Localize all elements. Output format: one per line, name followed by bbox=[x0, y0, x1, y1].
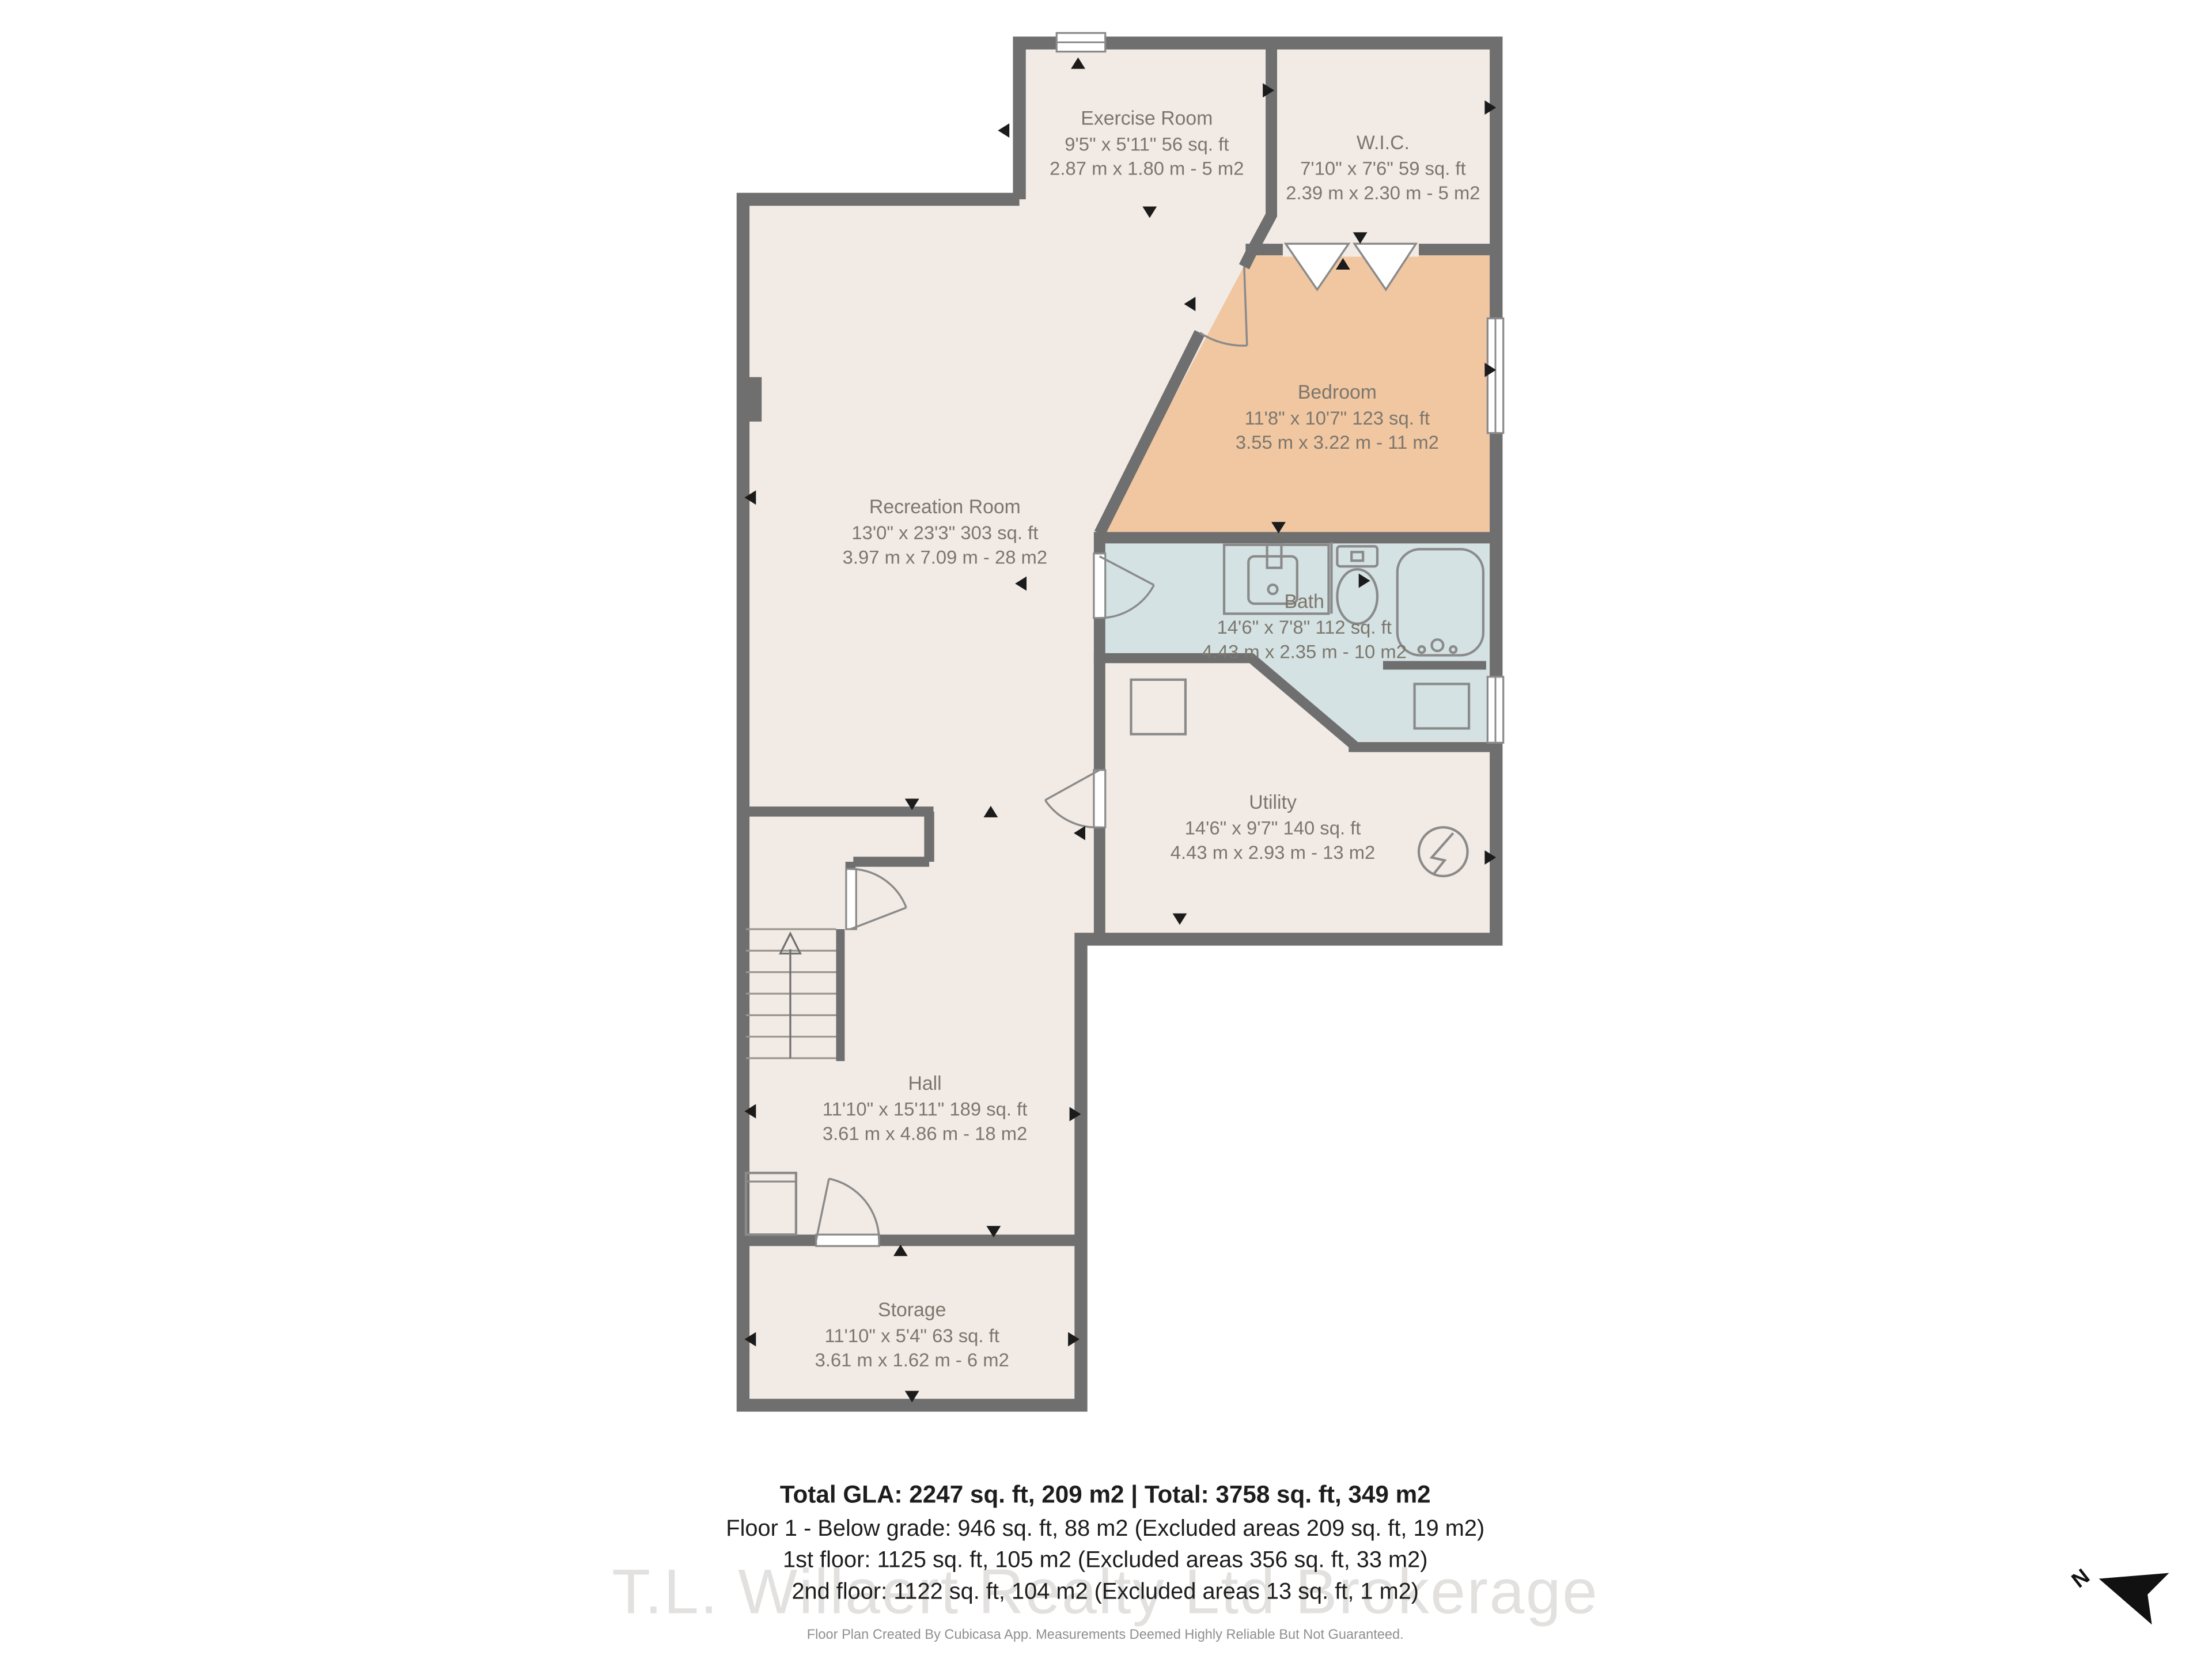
room-dims-m-utility: 4.43 m x 2.93 m - 13 m2 bbox=[1171, 842, 1376, 863]
summary-total: Total GLA: 2247 sq. ft, 209 m2 | Total: … bbox=[780, 1481, 1431, 1509]
summary-block: Total GLA: 2247 sq. ft, 209 m2 | Total: … bbox=[726, 1481, 1484, 1604]
window-top bbox=[1056, 33, 1105, 51]
summary-floor1: Floor 1 - Below grade: 946 sq. ft, 88 m2… bbox=[726, 1516, 1484, 1541]
room-name-bedroom: Bedroom bbox=[1298, 381, 1377, 403]
disclaimer-text: Floor Plan Created By Cubicasa App. Meas… bbox=[807, 1627, 1404, 1642]
window-bath bbox=[1487, 677, 1503, 743]
room-dims-ft-exercise: 9'5" x 5'11" 56 sq. ft bbox=[1065, 133, 1229, 154]
room-name-bath: Bath bbox=[1284, 590, 1324, 612]
north-arrow-icon: N bbox=[2067, 1564, 2169, 1625]
room-dims-m-bath: 4.43 m x 2.35 m - 10 m2 bbox=[1202, 641, 1407, 662]
summary-floor2: 1st floor: 1125 sq. ft, 105 m2 (Excluded… bbox=[783, 1547, 1428, 1573]
room-dims-ft-hall: 11'10" x 15'11" 189 sq. ft bbox=[823, 1099, 1028, 1120]
room-dims-ft-utility: 14'6" x 9'7" 140 sq. ft bbox=[1185, 817, 1361, 839]
room-dims-ft-bedroom: 11'8" x 10'7" 123 sq. ft bbox=[1245, 407, 1430, 429]
room-dims-ft-recreation: 13'0" x 23'3" 303 sq. ft bbox=[851, 522, 1038, 543]
room-label-recreation: Recreation Room 13'0" x 23'3" 303 sq. ft… bbox=[843, 496, 1048, 567]
north-label: N bbox=[2067, 1564, 2094, 1593]
room-name-wic: W.I.C. bbox=[1357, 132, 1410, 154]
room-name-storage: Storage bbox=[878, 1299, 946, 1321]
summary-floor3: 2nd floor: 1122 sq. ft, 104 m2 (Excluded… bbox=[791, 1578, 1419, 1604]
room-name-recreation: Recreation Room bbox=[869, 496, 1021, 518]
room-dims-m-recreation: 3.97 m x 7.09 m - 28 m2 bbox=[843, 546, 1048, 567]
room-dims-m-wic: 2.39 m x 2.30 m - 5 m2 bbox=[1286, 182, 1480, 203]
wall-pillar bbox=[743, 377, 762, 422]
room-name-utility: Utility bbox=[1249, 791, 1297, 813]
room-dims-ft-bath: 14'6" x 7'8" 112 sq. ft bbox=[1217, 616, 1392, 638]
room-dims-m-hall: 3.61 m x 4.86 m - 18 m2 bbox=[823, 1123, 1028, 1144]
room-dims-m-storage: 3.61 m x 1.62 m - 6 m2 bbox=[815, 1349, 1009, 1370]
window-bedroom bbox=[1487, 319, 1503, 433]
room-dims-ft-storage: 11'10" x 5'4" 63 sq. ft bbox=[825, 1325, 999, 1346]
floor-plan-canvas: Exercise Room 9'5" x 5'11" 56 sq. ft 2.8… bbox=[0, 0, 2212, 1659]
room-dims-ft-wic: 7'10" x 7'6" 59 sq. ft bbox=[1300, 158, 1465, 179]
room-dims-m-bedroom: 3.55 m x 3.22 m - 11 m2 bbox=[1236, 431, 1439, 453]
room-dims-m-exercise: 2.87 m x 1.80 m - 5 m2 bbox=[1050, 158, 1244, 179]
room-name-hall: Hall bbox=[908, 1073, 941, 1094]
floor-plan-page: Exercise Room 9'5" x 5'11" 56 sq. ft 2.8… bbox=[0, 0, 2212, 1659]
room-name-exercise: Exercise Room bbox=[1081, 108, 1213, 130]
